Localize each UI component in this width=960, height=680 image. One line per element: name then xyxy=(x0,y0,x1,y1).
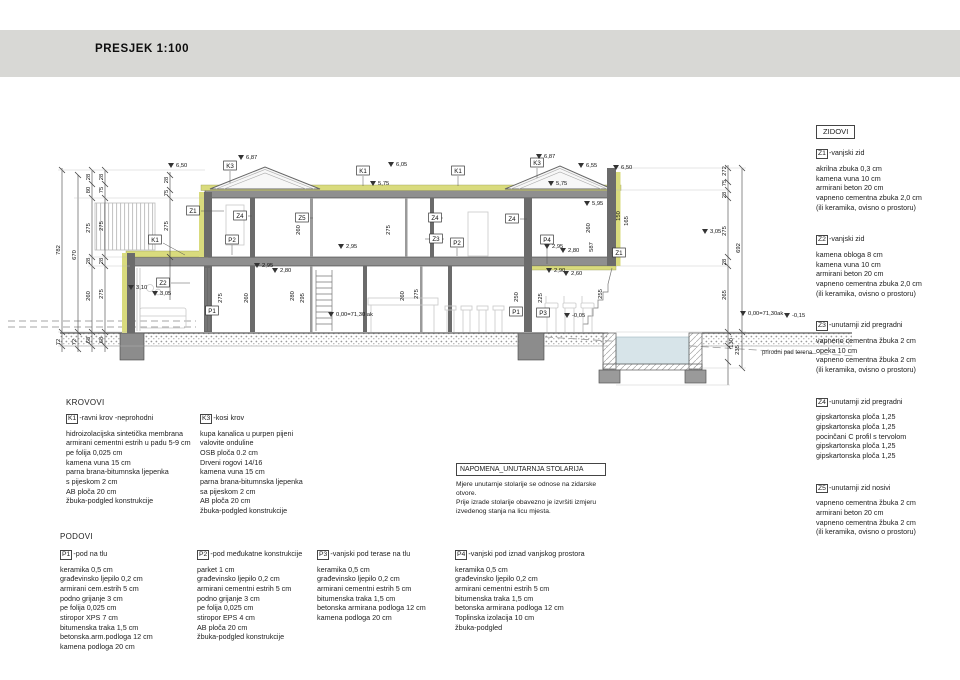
note-line: izvedenog stanja na licu mjesta. xyxy=(456,508,608,517)
terrain-label: prirodni pad terena xyxy=(762,350,813,356)
legend-code: Z5 xyxy=(816,484,828,494)
legend-layer: (ili keramika, ovisno o prostoru) xyxy=(816,527,958,537)
legend-layer: AB ploča 20 cm xyxy=(197,623,315,633)
legend-item: Z5-unutarnji zid nosivivapneno cementna … xyxy=(816,483,958,537)
elevation-flag-icon xyxy=(338,244,344,249)
napomena-title: NAPOMENA_UNUTARNJA STOLARIJA xyxy=(456,463,606,476)
elevation-value: 5,95 xyxy=(592,201,603,207)
legend-code: Z4 xyxy=(816,398,828,408)
legend-layer: armirani beton 20 cm xyxy=(816,508,958,518)
elevation-value: 3,10 xyxy=(136,285,147,291)
podovi-p4: P4-vanjski pod iznad vanjskog prostorake… xyxy=(455,549,605,645)
legend-layer: gipskartonska ploča 1,25 xyxy=(816,412,958,422)
drawing-label: P3 xyxy=(539,310,547,317)
legend-item: P1-pod na tlukeramika 0,5 cmgrađevinsko … xyxy=(60,549,195,652)
legend-layer: kupa kanalica u purpen pijeni xyxy=(200,429,330,439)
elevation-value: 6,55 xyxy=(586,163,597,169)
legend-layer: kamena vuna 15 cm xyxy=(66,458,206,468)
drawing-label: Z4 xyxy=(236,213,244,220)
legend-item: K1-ravni krov -neprohodnihidroizolacijsk… xyxy=(66,413,206,506)
legend-code: K3 xyxy=(200,414,212,424)
legend-layer: armirani cementni estrih 5 cm xyxy=(197,584,315,594)
legend-item: Z3-unutarnji zid pregradnivapneno cement… xyxy=(816,320,958,374)
dimension-value: 75 xyxy=(722,180,728,186)
napomena-text: Mjere unutarnje stolarije se odnose na z… xyxy=(456,481,608,517)
zidovi-title: ZIDOVI xyxy=(816,125,855,139)
dimension-value: 275 xyxy=(86,223,92,233)
elevation-value: 0,00=71,30 ak xyxy=(336,312,373,318)
elevation-flag-icon xyxy=(578,163,584,168)
drawing-label: K3 xyxy=(226,163,234,170)
legend-layer: vapneno cementna žbuka 2 cm xyxy=(816,355,958,365)
elevation-value: 2,80 xyxy=(280,268,291,274)
elevation-flag-icon xyxy=(584,201,590,206)
legend-layer: žbuka-podgled konstrukcije xyxy=(200,506,330,516)
elevation-flag-icon xyxy=(546,268,552,273)
legend-layer: vapneno cementna žbuka 2 cm xyxy=(816,518,958,528)
elevation-flag-icon xyxy=(328,312,334,317)
legend-layer: stiropor XPS 7 cm xyxy=(60,613,195,623)
dimension-value: 272 xyxy=(722,166,728,176)
elevation-value: 0,00=71,30ak xyxy=(748,311,783,317)
podovi-heading: PODOVI xyxy=(60,532,93,543)
legend-layer: pe folija 0,025 cm xyxy=(66,448,206,458)
legend-layer: građevinsko ljepilo 0,2 cm xyxy=(317,574,452,584)
elevation-flag-icon xyxy=(168,163,174,168)
legend-layer: građevinsko ljepilo 0,2 cm xyxy=(60,574,195,584)
legend-layer: OSB ploča 0.2 cm xyxy=(200,448,330,458)
legend-code: Z3 xyxy=(816,321,828,331)
legend-layer: opeka 10 cm xyxy=(816,346,958,356)
dimension-value: 275 xyxy=(414,289,420,299)
legend-code: P3 xyxy=(317,550,329,560)
legend-layer: betonska armirana podloga 12 cm xyxy=(317,603,452,613)
dimension-value: 692 xyxy=(736,243,742,253)
legend-layer: s pijeskom 2 cm xyxy=(66,477,206,487)
legend-layer: gipskartonska ploča 1,25 xyxy=(816,422,958,432)
dimension-value: 275 xyxy=(99,289,105,299)
krovovi-k3: K3-kosi krovkupa kanalica u purpen pijen… xyxy=(200,413,330,529)
legend-layer: pe folija 0,025 cm xyxy=(60,603,195,613)
podovi-p2: P2-pod međukatne konstrukcijeparket 1 cm… xyxy=(197,549,315,655)
legend-layer: sa pijeskom 2 cm xyxy=(200,487,330,497)
legend-layer: vapneno cementna zbuka 2,0 cm xyxy=(816,193,958,203)
elevation-flag-icon xyxy=(544,244,550,249)
legend-layer: pe folija 0,025 cm xyxy=(197,603,315,613)
drawing-label: K1 xyxy=(359,168,367,175)
elevation-value: -0,05 xyxy=(572,313,585,319)
dimension-value: 260 xyxy=(400,291,406,301)
legend-layer: AB ploča 20 cm xyxy=(200,496,330,506)
page: { "title": "PRESJEK 1:100", "zidovi": { … xyxy=(0,0,960,680)
dimension-value: 150 xyxy=(616,211,622,221)
dimension-value: 28 xyxy=(164,177,170,183)
drawing-label: P2 xyxy=(453,240,461,247)
legend-layer: kamena vuna 10 cm xyxy=(816,260,958,270)
dimension-value: 28 xyxy=(722,259,728,265)
napomena-box: NAPOMENA_UNUTARNJA STOLARIJA Mjere unuta… xyxy=(456,463,608,517)
elevation-value: 2,60 xyxy=(571,271,582,277)
elevation-flag-icon xyxy=(238,155,244,160)
elevation-value: 6,50 xyxy=(621,165,632,171)
legend-layer: Drveni rogovi 14/16 xyxy=(200,458,330,468)
dimension-value: 250 xyxy=(514,292,520,302)
legend-layer: gipskartonska ploča 1,25 xyxy=(816,451,958,461)
dimension-value: 275 xyxy=(722,226,728,236)
dimension-value: 670 xyxy=(72,250,78,260)
drawing-label: P1 xyxy=(512,309,520,316)
legend-layer: armirani beton 20 cm xyxy=(816,269,958,279)
legend-layer: akrilna zbuka 0,3 cm xyxy=(816,164,958,174)
dimension-value: 265 xyxy=(722,290,728,300)
legend-item: K3-kosi krovkupa kanalica u purpen pijen… xyxy=(200,413,330,516)
legend-layer: vapneno cementna žbuka 2 cm xyxy=(816,498,958,508)
dimension-value: 80 xyxy=(86,187,92,193)
legend-layer: armirani beton 20 cm xyxy=(816,183,958,193)
legend-item: P2-pod međukatne konstrukcijeparket 1 cm… xyxy=(197,549,315,642)
legend-layer: vapneno cementna zbuka 2,0 cm xyxy=(816,279,958,289)
legend-layer: (ili keramika, ovisno o prostoru) xyxy=(816,365,958,375)
note-line: otvore. xyxy=(456,490,608,499)
elevation-flag-icon xyxy=(740,311,746,316)
dimension-value: 260 xyxy=(86,291,92,301)
dimension-value: 587 xyxy=(589,242,595,252)
dimension-value: 260 xyxy=(586,223,592,233)
elevation-flag-icon xyxy=(560,248,566,253)
krovovi-heading: KROVOVI xyxy=(66,398,105,409)
legend-layer: podno grijanje 3 cm xyxy=(60,594,195,604)
drawing-label: P1 xyxy=(208,308,216,315)
legend-item: P3-vanjski pod terase na tlukeramika 0,5… xyxy=(317,549,452,623)
legend-layer: betonska.arm.podloga 12 cm xyxy=(60,632,195,642)
legend-code: P2 xyxy=(197,550,209,560)
dimension-value: 260 xyxy=(244,293,250,303)
drawing-label: K1 xyxy=(151,237,159,244)
legend-layer: kamena podloga 20 cm xyxy=(317,613,452,623)
drawing-label: Z1 xyxy=(615,250,623,257)
pool xyxy=(599,333,706,383)
elevation-flag-icon xyxy=(272,268,278,273)
dimension-value: 72 xyxy=(72,339,78,345)
elevation-value: 2,80 xyxy=(568,248,579,254)
elevation-flag-icon xyxy=(702,229,708,234)
dimension-value: 275 xyxy=(218,293,224,303)
legend-layer: građevinsko ljepilo 0,2 cm xyxy=(197,574,315,584)
legend-item: P4-vanjski pod iznad vanjskog prostorake… xyxy=(455,549,605,632)
dimension-value: 75 xyxy=(99,187,105,193)
legend-code: Z1 xyxy=(816,149,828,159)
drawing-label: Z4 xyxy=(431,215,439,222)
dimension-value: 275 xyxy=(99,221,105,231)
note-line: Prije izrade stolarije obavezno je izvrš… xyxy=(456,499,608,508)
legend-layer: hidroizolacijska sintetička membrana xyxy=(66,429,206,439)
dimension-value: 75 xyxy=(164,190,170,196)
legend-layer: armirani cem.estrih 5 cm xyxy=(60,584,195,594)
dimension-value: 225 xyxy=(538,293,544,303)
legend-layer: armirani cementni estrih u padu 5-9 cm xyxy=(66,438,206,448)
elevation-value: 2,95 xyxy=(346,244,357,250)
legend-layer: gipskartonska ploča 1,25 xyxy=(816,441,958,451)
dimension-value: 275 xyxy=(386,225,392,235)
legend-layer: vapneno cementna žbuka 2 cm xyxy=(816,336,958,346)
zidovi-panel: ZIDOVI Z1-vanjski zidakrilna zbuka 0,3 c… xyxy=(816,125,958,559)
legend-layer: parna brana-bitumnska ljepenka xyxy=(66,467,206,477)
elevation-value: 5,75 xyxy=(556,181,567,187)
stairs xyxy=(316,268,612,332)
dimension-value: 28 xyxy=(86,258,92,264)
drawing-label: Z2 xyxy=(159,280,167,287)
legend-layer: kamena obloga 8 cm xyxy=(816,250,958,260)
drawing-label: K1 xyxy=(454,168,462,175)
dimension-value: 165 xyxy=(624,216,630,226)
elevation-value: 6,87 xyxy=(246,155,257,161)
legend-layer: bitumenska traka 1,5 cm xyxy=(317,594,452,604)
drawing-label: K3 xyxy=(533,160,541,167)
legend-code: P4 xyxy=(455,550,467,560)
legend-layer: kamena vuna 15 cm xyxy=(200,467,330,477)
legend-layer: parna brana-bitumnska ljepenka xyxy=(200,477,330,487)
legend-layer: žbuka-podgled xyxy=(455,623,605,633)
legend-item: Z2-vanjski zidkamena obloga 8 cmkamena v… xyxy=(816,234,958,298)
podovi-p1: P1-pod na tlukeramika 0,5 cmgrađevinsko … xyxy=(60,549,195,665)
drawing-label: Z1 xyxy=(189,208,197,215)
legend-layer: građevinsko ljepilo 0,2 cm xyxy=(455,574,605,584)
legend-layer: AB ploča 20 cm xyxy=(66,487,206,497)
dimension-value: 28 xyxy=(99,258,105,264)
legend-layer: žbuka-podgled konstrukcije xyxy=(66,496,206,506)
legend-layer: keramika 0,5 cm xyxy=(455,565,605,575)
legend-item: Z4-unutarnji zid pregradnigipskartonska … xyxy=(816,397,958,461)
legend-code: P1 xyxy=(60,550,72,560)
legend-layer: podno grijanje 3 cm xyxy=(197,594,315,604)
elevation-value: 3,05 xyxy=(160,291,171,297)
elevation-value: 6,05 xyxy=(396,162,407,168)
legend-layer: pocinčani C profil s tervolom xyxy=(816,432,958,442)
elevation-value: -0,15 xyxy=(792,313,805,319)
dimension-value: 72 xyxy=(56,339,62,345)
elevation-value: 6,50 xyxy=(176,163,187,169)
legend-layer: keramika 0,5 cm xyxy=(60,565,195,575)
legend-layer: betonska armirana podloga 12 cm xyxy=(455,603,605,613)
dimension-value: 28 xyxy=(86,174,92,180)
elevation-flag-icon xyxy=(388,162,394,167)
elevation-value: 6,87 xyxy=(544,154,555,160)
drawing-label: Z4 xyxy=(508,216,516,223)
elevation-flag-icon xyxy=(152,291,158,296)
dimension-value: 295 xyxy=(300,293,306,303)
dimension-value: 68 xyxy=(99,337,105,343)
dimension-value: 260 xyxy=(296,225,302,235)
legend-layer: armirani cementni estrih 5 cm xyxy=(317,584,452,594)
legend-code: Z2 xyxy=(816,235,828,245)
drawing-label: P2 xyxy=(228,237,236,244)
legend-layer: keramika 0,5 cm xyxy=(317,565,452,575)
podovi-p3: P3-vanjski pod terase na tlukeramika 0,5… xyxy=(317,549,452,636)
legend-layer: stiropor EPS 4 cm xyxy=(197,613,315,623)
elevation-value: 5,75 xyxy=(378,181,389,187)
zidovi-list: Z1-vanjski zidakrilna zbuka 0,3 cmkamena… xyxy=(816,148,958,537)
elevation-value: 2,95 xyxy=(262,263,273,269)
drawing-label: P4 xyxy=(543,237,551,244)
legend-layer: bitumenska traka 1,5 cm xyxy=(60,623,195,633)
dimension-value: 275 xyxy=(164,221,170,231)
legend-layer: (ili keramika, ovisno o prostoru) xyxy=(816,289,958,299)
legend-layer: armirani cementni estrih 5 cm xyxy=(455,584,605,594)
elevation-flag-icon xyxy=(784,313,790,318)
legend-layer: parket 1 cm xyxy=(197,565,315,575)
dimension-value: 68 xyxy=(86,337,92,343)
legend-code: K1 xyxy=(66,414,78,424)
legend-layer: kamena podloga 20 cm xyxy=(60,642,195,652)
dimension-value: 28 xyxy=(722,192,728,198)
legend-layer: Toplinska izolacija 10 cm xyxy=(455,613,605,623)
legend-layer: kamena vuna 10 cm xyxy=(816,174,958,184)
legend-layer: (ili keramika, ovisno o prostoru) xyxy=(816,203,958,213)
krovovi-k1: K1-ravni krov -neprohodnihidroizolacijsk… xyxy=(66,413,206,519)
drawing-label: Z5 xyxy=(298,215,306,222)
note-line: Mjere unutarnje stolarije se odnose na z… xyxy=(456,481,608,490)
elevation-value: 3,05 xyxy=(710,229,721,235)
drawing-label: Z3 xyxy=(432,236,440,243)
legend-layer: žbuka-podgled konstrukcije xyxy=(197,632,315,642)
legend-layer: valovite onduline xyxy=(200,438,330,448)
dimension-value: 782 xyxy=(56,245,62,255)
dimension-value: 235 xyxy=(735,345,741,355)
dimension-value: 255 xyxy=(598,289,604,299)
dimension-value: 28 xyxy=(99,174,105,180)
dimension-value: 280 xyxy=(290,291,296,301)
legend-item: Z1-vanjski zidakrilna zbuka 0,3 cmkamena… xyxy=(816,148,958,212)
legend-layer: bitumenska traka 1,5 cm xyxy=(455,594,605,604)
